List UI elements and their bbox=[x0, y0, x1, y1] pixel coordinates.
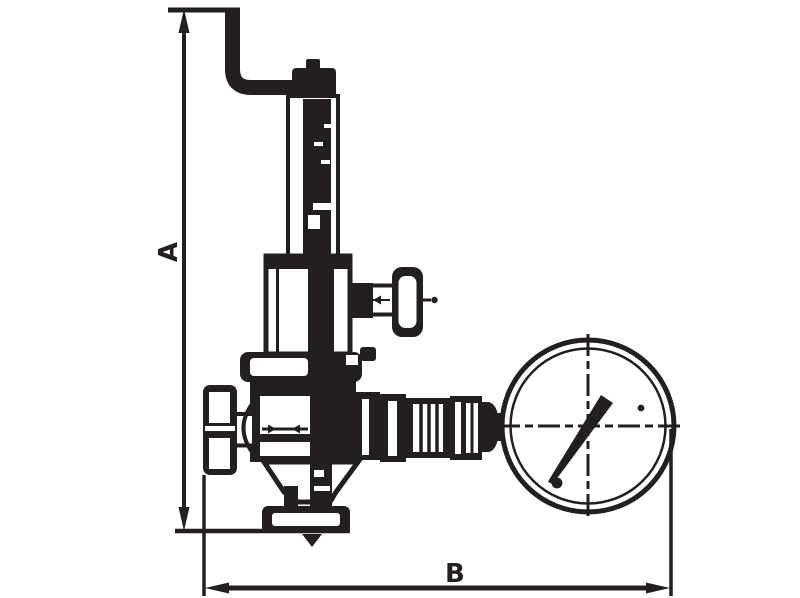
pressure-gauge bbox=[498, 334, 680, 518]
body-lower-window bbox=[260, 442, 310, 456]
dimension-b-arrow-right-icon bbox=[646, 583, 670, 594]
screw-step bbox=[313, 203, 334, 210]
dimension-b-arrow-left-icon bbox=[205, 583, 229, 594]
bottom-flange-window bbox=[272, 513, 340, 526]
reducer bbox=[482, 402, 499, 452]
side-valve-handwheel bbox=[350, 267, 438, 337]
outlet-fittings bbox=[356, 392, 509, 462]
spring-housing bbox=[288, 96, 338, 258]
technical-drawing-canvas: A bbox=[0, 0, 800, 598]
inlet-cap-window bbox=[209, 392, 230, 423]
flange-notch bbox=[346, 355, 358, 365]
top-flange bbox=[240, 347, 376, 382]
adjusting-rod bbox=[233, 10, 337, 98]
thread-mark bbox=[321, 160, 330, 164]
inlet-cap-groove bbox=[205, 426, 235, 431]
valve-drawing-svg: A bbox=[0, 0, 800, 598]
handwheel-axle-tip bbox=[431, 297, 437, 303]
outlet-flange-slit bbox=[362, 399, 369, 455]
thread-mark bbox=[324, 124, 333, 128]
bonnet-spindle bbox=[308, 269, 334, 354]
inlet-cap bbox=[203, 385, 237, 475]
passage-mark bbox=[314, 470, 324, 477]
inlet-cap-window bbox=[209, 438, 230, 469]
passage-mark bbox=[314, 486, 330, 491]
dimension-a-arrow-up-icon bbox=[179, 9, 190, 33]
bonnet bbox=[266, 256, 350, 354]
handwheel-inner bbox=[399, 276, 417, 328]
thread-mark bbox=[314, 142, 323, 146]
bonnet-top-band bbox=[266, 256, 350, 269]
gauge-dial-dot bbox=[638, 405, 645, 412]
dimension-a-label: A bbox=[154, 242, 184, 262]
flange-window bbox=[250, 358, 308, 376]
centerline-mark-icon bbox=[373, 296, 381, 305]
stem-wall bbox=[284, 486, 298, 506]
screw-step bbox=[308, 215, 320, 229]
valve-body bbox=[236, 380, 356, 462]
dimension-a-arrow-down-icon bbox=[179, 507, 190, 531]
fitting-slit bbox=[388, 401, 397, 456]
side-plug bbox=[360, 347, 376, 361]
adjusting-rod-cap bbox=[292, 68, 336, 98]
gauge-needle-pivot-dot bbox=[552, 478, 563, 489]
fitting-slit bbox=[455, 402, 461, 454]
bottom-spigot bbox=[302, 534, 322, 547]
adjusting-rod-bend bbox=[233, 10, 297, 88]
dimension-b-label: B bbox=[445, 559, 465, 589]
adjusting-screw bbox=[303, 99, 331, 255]
